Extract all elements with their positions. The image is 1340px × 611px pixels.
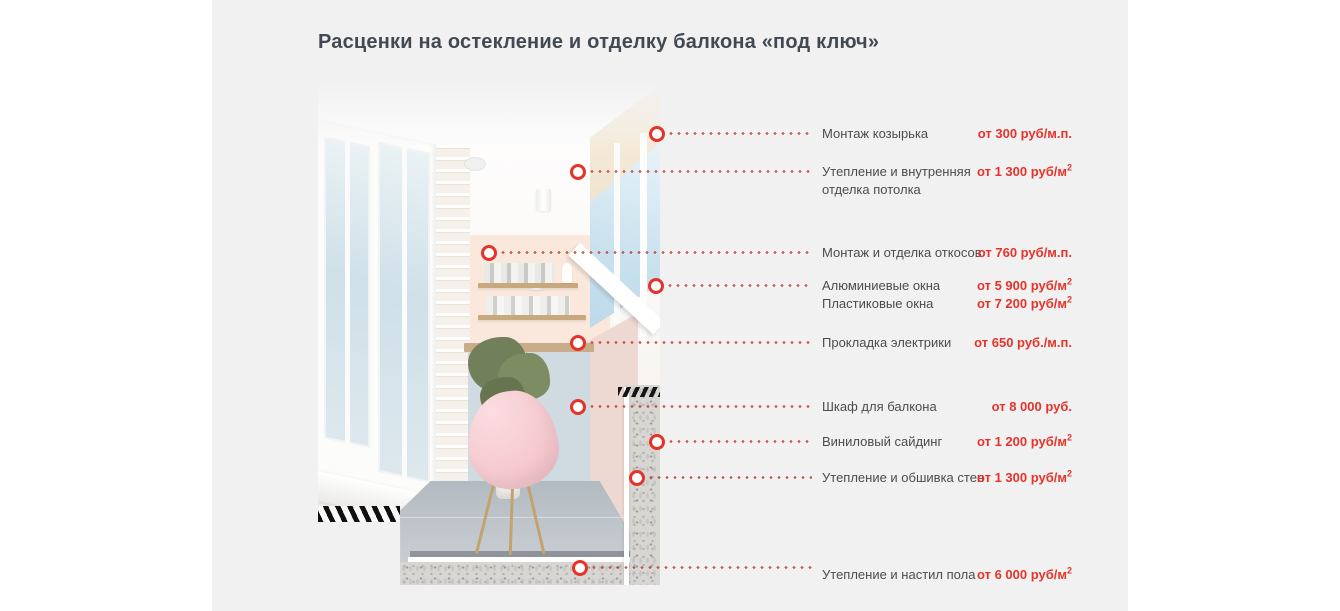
price-callouts: Монтаж козырька от 300 руб/м.п. Утеплени… [212, 0, 1128, 611]
callout-row-floor: Утепление и настил пола от 6 000 руб/м2 [212, 0, 1128, 611]
dotted-leader-line [592, 566, 812, 569]
pricing-section: Расценки на остекление и отделку балкона… [212, 0, 1128, 611]
pricing-section-page: Расценки на остекление и отделку балкона… [0, 0, 1340, 611]
callout-price: от 6 000 руб/м2 [912, 566, 1072, 584]
marker-circle-icon [572, 560, 588, 576]
